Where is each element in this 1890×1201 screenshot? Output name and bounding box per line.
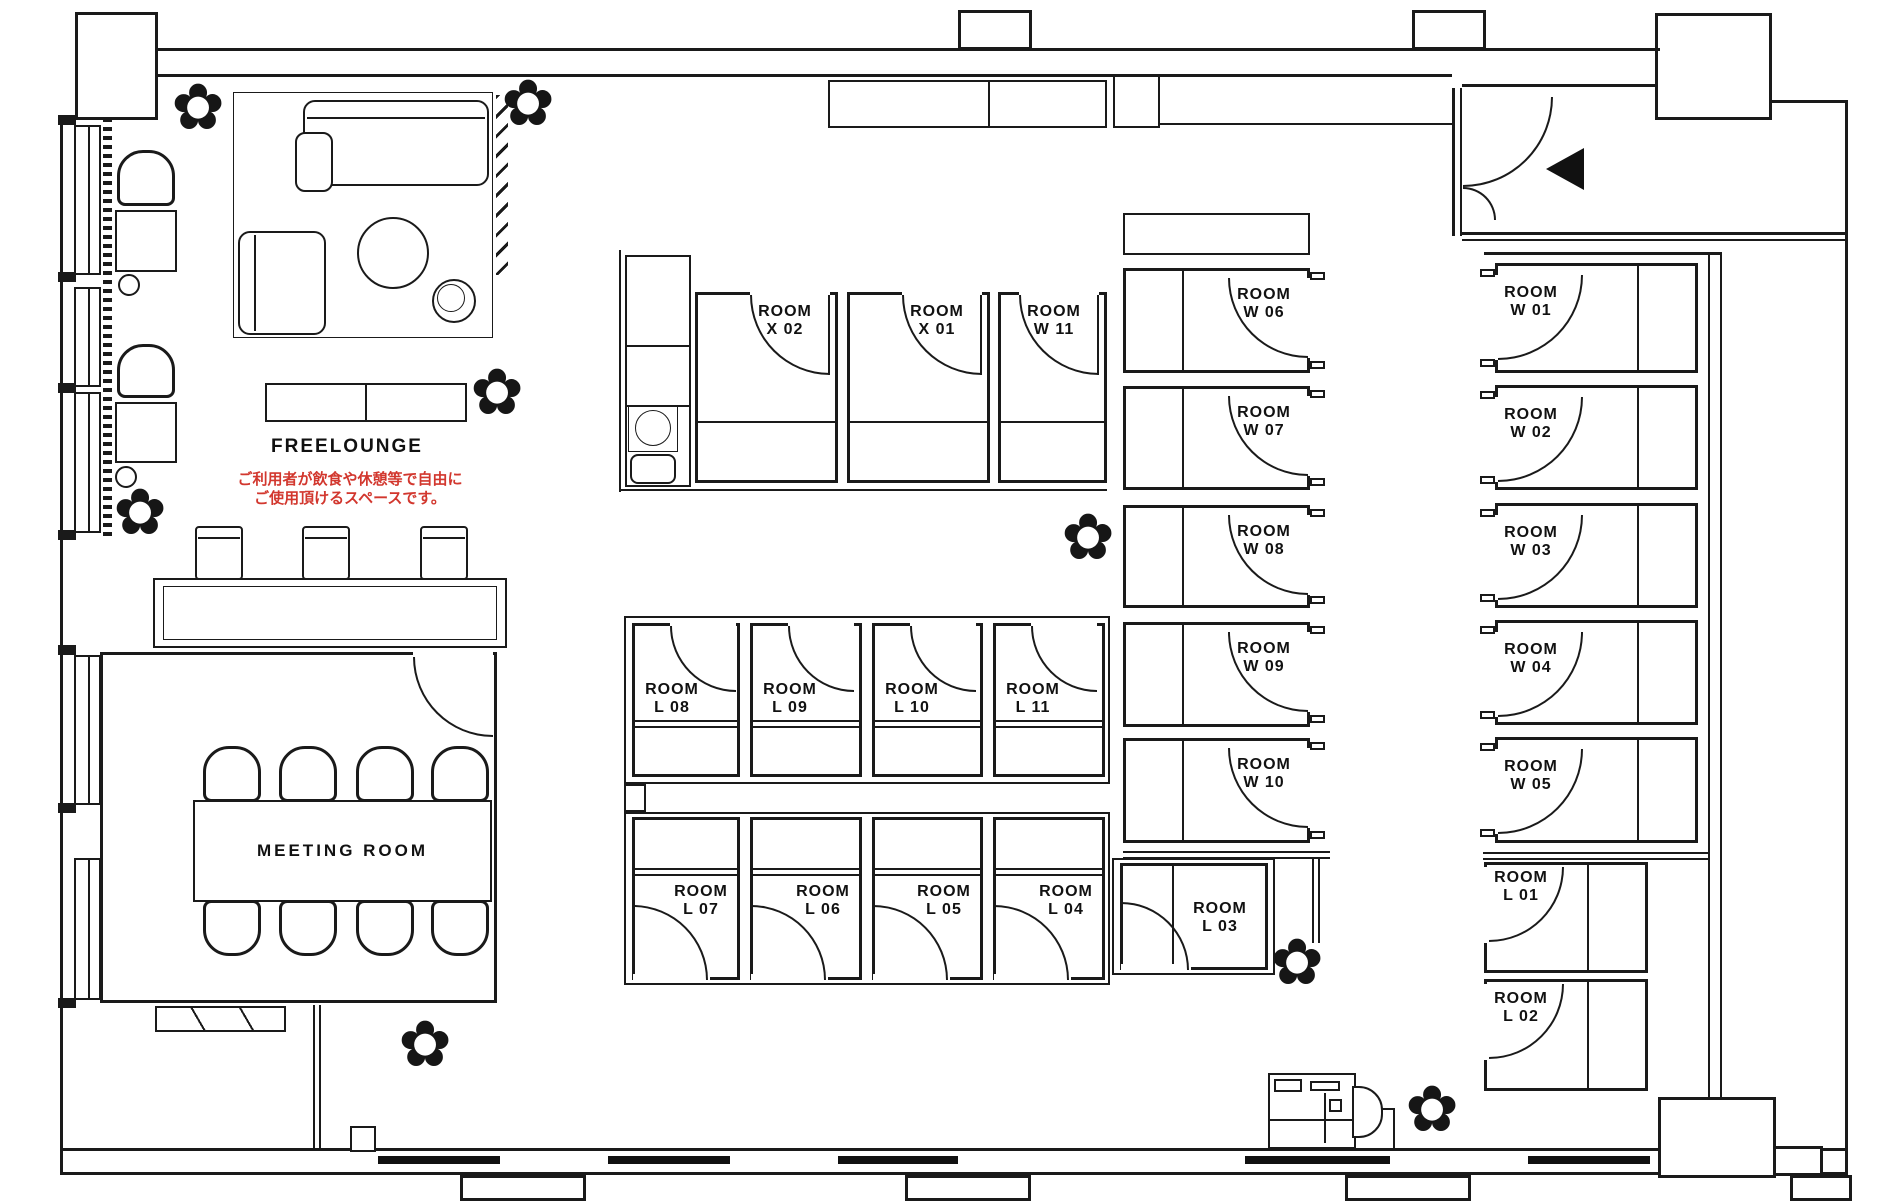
desk-divider xyxy=(1587,981,1589,1089)
room-label: ROOM xyxy=(1490,869,1552,887)
wall xyxy=(619,489,1107,491)
desk-edge xyxy=(634,720,738,722)
room-l09: ROOM L 09 xyxy=(750,623,862,777)
window xyxy=(74,287,101,387)
desk-divider xyxy=(1182,740,1184,841)
window xyxy=(1528,1156,1650,1164)
door-frame-tick xyxy=(1480,509,1495,517)
coffee-table xyxy=(357,217,429,289)
desk-divider xyxy=(1637,739,1639,841)
room-number: W 09 xyxy=(1222,658,1306,676)
chair xyxy=(203,746,261,802)
desk-edge xyxy=(995,720,1103,722)
room-number: W 02 xyxy=(1500,424,1562,442)
plant-icon: ✿ xyxy=(501,72,555,136)
room-l11: ROOM L 11 xyxy=(993,623,1105,777)
room-l08: ROOM L 08 xyxy=(632,623,740,777)
kitchen-stool xyxy=(630,454,676,484)
room-number: L 07 xyxy=(665,901,737,919)
plant-icon: ✿ xyxy=(1061,506,1115,570)
room-number: W 03 xyxy=(1500,542,1562,560)
door-frame-tick xyxy=(1480,626,1495,634)
room-number: X 01 xyxy=(884,321,990,339)
cabinet-hatched xyxy=(155,1006,286,1032)
wall-right xyxy=(1845,100,1848,1175)
window xyxy=(74,392,101,533)
room-label: ROOM xyxy=(635,681,709,699)
room-number: W 04 xyxy=(1500,659,1562,677)
room-w05: ROOM W 05 xyxy=(1495,737,1698,843)
room-label: ROOM xyxy=(1500,641,1562,659)
room-w08: ROOM W 08 xyxy=(1123,505,1310,608)
desk-edge xyxy=(634,874,738,876)
room-l01: ROOM L 01 xyxy=(1484,862,1648,973)
stool-line xyxy=(423,537,465,539)
desk-divider xyxy=(1637,622,1639,723)
door-opening xyxy=(413,649,493,657)
copier-panel xyxy=(1310,1081,1340,1091)
counter xyxy=(153,578,507,648)
desk-edge xyxy=(995,726,1103,728)
window xyxy=(378,1156,500,1164)
desk xyxy=(115,210,177,272)
copier-line xyxy=(1269,1119,1355,1121)
room-number: L 05 xyxy=(908,901,980,919)
chair xyxy=(431,746,489,802)
door-frame-tick xyxy=(1480,476,1495,484)
desk-divider xyxy=(1182,270,1184,371)
desk-divider xyxy=(1182,624,1184,725)
window xyxy=(838,1156,958,1164)
column-bottom-2 xyxy=(905,1175,1031,1201)
room-number: L 11 xyxy=(996,699,1070,717)
desk-edge xyxy=(697,421,836,423)
counter-stool xyxy=(302,526,350,580)
room-label: ROOM xyxy=(884,303,990,321)
room-l10: ROOM L 10 xyxy=(872,623,983,777)
room-label: ROOM xyxy=(1004,303,1104,321)
copier-machine xyxy=(1268,1073,1356,1149)
room-label: ROOM xyxy=(1222,404,1306,422)
door-frame-tick xyxy=(1480,391,1495,399)
door-frame-tick xyxy=(1310,390,1325,398)
room-label: ROOM xyxy=(1490,990,1552,1008)
room-number: L 02 xyxy=(1490,1008,1552,1026)
chair xyxy=(279,900,337,956)
desk-edge xyxy=(1000,421,1105,423)
room-w03: ROOM W 03 xyxy=(1495,503,1698,608)
entrance-frame xyxy=(1460,88,1462,236)
room-w01: ROOM W 01 xyxy=(1495,263,1698,373)
window xyxy=(1245,1156,1390,1164)
door-frame-tick xyxy=(1480,743,1495,751)
room-l03: ROOM L 03 xyxy=(1120,863,1268,970)
room-l04: ROOM L 04 xyxy=(993,817,1105,980)
cabinet-divider xyxy=(988,81,990,127)
column-top-1 xyxy=(958,10,1032,50)
room-w02: ROOM W 02 xyxy=(1495,385,1698,490)
plant-icon: ✿ xyxy=(1405,1078,1459,1142)
chair xyxy=(117,344,175,398)
lounge-note-line1: ご利用者が飲食や休憩等で自由に xyxy=(228,470,472,489)
copier-button xyxy=(1329,1099,1342,1112)
column-bottom-1 xyxy=(460,1175,586,1201)
wall-bottom xyxy=(60,1148,1848,1151)
room-label: ROOM xyxy=(996,681,1070,699)
meeting-table: MEETING ROOM xyxy=(193,800,492,902)
room-w04: ROOM W 04 xyxy=(1495,620,1698,725)
desk xyxy=(115,402,177,463)
desk-edge xyxy=(874,726,981,728)
door-frame-tick xyxy=(1310,715,1325,723)
shelf-divider xyxy=(365,384,367,421)
cabinet-top-small xyxy=(1113,75,1160,128)
desk-edge xyxy=(752,720,860,722)
room-l02: ROOM L 02 xyxy=(1484,979,1648,1091)
door-frame-tick xyxy=(1310,742,1325,750)
wall xyxy=(1770,100,1848,103)
door-frame-tick xyxy=(1480,711,1495,719)
room-x01: ROOM X 01 xyxy=(847,292,990,483)
room-number: W 11 xyxy=(1004,321,1104,339)
room-label: ROOM xyxy=(1222,286,1306,304)
room-number: L 03 xyxy=(1174,918,1266,936)
column-top-left xyxy=(75,12,158,120)
room-number: W 05 xyxy=(1500,776,1562,794)
room-label: ROOM xyxy=(1174,900,1266,918)
room-number: L 08 xyxy=(635,699,709,717)
wall xyxy=(319,1005,321,1148)
room-l05: ROOM L 05 xyxy=(872,817,983,980)
plant-icon: ✿ xyxy=(171,76,225,140)
wall xyxy=(158,48,1660,51)
desk-divider xyxy=(1637,265,1639,371)
room-l07: ROOM L 07 xyxy=(632,817,740,980)
stool-inner xyxy=(437,284,465,312)
kitchen-unit xyxy=(625,255,691,487)
wall-block-bottom-right xyxy=(1773,1146,1823,1176)
stool xyxy=(118,274,140,296)
room-label: ROOM xyxy=(1222,640,1306,658)
room-label: ROOM xyxy=(753,681,827,699)
chair xyxy=(356,746,414,802)
room-number: W 07 xyxy=(1222,422,1306,440)
door-frame-tick xyxy=(1310,831,1325,839)
copier-line xyxy=(1324,1093,1326,1143)
kitchen-divider xyxy=(626,345,690,347)
copier-panel xyxy=(1274,1079,1302,1092)
chair xyxy=(117,150,175,206)
column-bottom-3 xyxy=(1345,1175,1471,1201)
room-w06: ROOM W 06 xyxy=(1123,268,1310,373)
entrance-arrow-icon xyxy=(1546,148,1584,190)
wall-corridor xyxy=(1708,252,1710,1097)
door-frame-tick xyxy=(1310,596,1325,604)
wall xyxy=(1123,851,1330,853)
room-number: W 08 xyxy=(1222,541,1306,559)
room-w09: ROOM W 09 xyxy=(1123,622,1310,727)
desk-edge xyxy=(752,868,860,870)
corridor-cap xyxy=(624,784,646,812)
stool xyxy=(432,279,476,323)
lounge-note-line2: ご使用頂けるスペースです。 xyxy=(228,489,472,508)
room-number: W 06 xyxy=(1222,304,1306,322)
column-top-2 xyxy=(1412,10,1486,50)
plant-icon: ✿ xyxy=(470,361,524,425)
door-frame-tick xyxy=(1480,594,1495,602)
room-label: ROOM xyxy=(1030,883,1102,901)
wall xyxy=(1462,232,1845,235)
room-number: L 06 xyxy=(787,901,859,919)
desk-edge xyxy=(634,868,738,870)
chair xyxy=(203,900,261,956)
floor-plan: FREELOUNGE ご利用者が飲食や休憩等で自由に ご使用頂けるスペースです。… xyxy=(0,0,1890,1201)
sofa-back-line xyxy=(307,117,485,119)
window xyxy=(74,655,101,805)
column-bottom-4 xyxy=(1790,1175,1852,1201)
wall-pier xyxy=(58,645,76,655)
room-label: ROOM xyxy=(787,883,859,901)
stool-line xyxy=(198,537,240,539)
wall-corridor xyxy=(1720,252,1722,1097)
room-label: ROOM xyxy=(665,883,737,901)
plant-icon: ✿ xyxy=(113,481,167,545)
desk-edge xyxy=(849,421,988,423)
desk-divider xyxy=(1637,387,1639,488)
wall xyxy=(1483,852,1708,854)
room-label: ROOM xyxy=(875,681,949,699)
entrance-frame xyxy=(1452,88,1455,236)
entrance-door-arc xyxy=(1463,187,1496,220)
desk-edge xyxy=(995,874,1103,876)
counter-stool xyxy=(195,526,243,580)
wall xyxy=(1462,84,1657,87)
chair xyxy=(431,900,489,956)
room-label: ROOM xyxy=(1500,406,1562,424)
door-frame-tick xyxy=(1310,272,1325,280)
room-number: L 04 xyxy=(1030,901,1102,919)
chair xyxy=(356,900,414,956)
chair xyxy=(279,746,337,802)
window xyxy=(74,858,101,1000)
sofa-2 xyxy=(238,231,326,335)
column-small xyxy=(350,1126,376,1152)
wall xyxy=(1462,239,1845,241)
door-arc xyxy=(413,657,493,737)
room-w10: ROOM W 10 xyxy=(1123,738,1310,843)
door-frame-tick xyxy=(1310,626,1325,634)
desk-edge xyxy=(874,868,981,870)
plant-icon: ✿ xyxy=(1270,931,1324,995)
cabinet-w-block xyxy=(1123,213,1310,255)
meeting-room: MEETING ROOM xyxy=(100,652,497,1003)
room-l06: ROOM L 06 xyxy=(750,817,862,980)
room-label: ROOM xyxy=(1222,756,1306,774)
wall xyxy=(619,250,621,492)
desk-edge xyxy=(874,720,981,722)
entrance-door-arc xyxy=(1463,97,1553,187)
desk-edge xyxy=(752,874,860,876)
window xyxy=(608,1156,730,1164)
room-label: ROOM xyxy=(1500,758,1562,776)
room-w07: ROOM W 07 xyxy=(1123,386,1310,490)
cabinet-top xyxy=(828,80,1107,128)
door-frame-tick xyxy=(1480,269,1495,277)
desk-edge xyxy=(634,726,738,728)
shelf xyxy=(265,383,467,422)
lounge-label: FREELOUNGE xyxy=(262,436,432,458)
desk-divider xyxy=(1637,505,1639,606)
sofa-back-line xyxy=(254,235,256,331)
wall xyxy=(1483,858,1708,860)
sink-bowl xyxy=(635,410,671,446)
door-frame-tick xyxy=(1310,509,1325,517)
desk-divider xyxy=(1182,388,1184,488)
desk-edge xyxy=(995,868,1103,870)
room-number: L 10 xyxy=(875,699,949,717)
wall-pier xyxy=(58,115,76,125)
room-label: ROOM xyxy=(1500,524,1562,542)
door-frame-tick xyxy=(1480,359,1495,367)
room-label: ROOM xyxy=(908,883,980,901)
desk-edge xyxy=(874,874,981,876)
column-top-right xyxy=(1655,13,1772,120)
desk-divider xyxy=(1182,507,1184,606)
wall xyxy=(158,74,1452,77)
room-number: W 10 xyxy=(1222,774,1306,792)
room-w11: ROOM W 11 xyxy=(998,292,1107,483)
room-label: ROOM xyxy=(1222,523,1306,541)
desk-divider xyxy=(1587,864,1589,971)
counter-stool xyxy=(420,526,468,580)
door-frame-tick xyxy=(1310,478,1325,486)
wall xyxy=(313,1005,315,1148)
room-number: L 01 xyxy=(1490,887,1552,905)
blind-symbol xyxy=(103,120,112,536)
room-number: W 01 xyxy=(1500,302,1562,320)
room-label: ROOM xyxy=(732,303,838,321)
stool-line xyxy=(305,537,347,539)
sofa-side-table xyxy=(295,132,333,192)
room-x02: ROOM X 02 xyxy=(695,292,838,483)
wall xyxy=(1160,123,1452,125)
window xyxy=(74,125,101,275)
door-frame-tick xyxy=(1480,829,1495,837)
wall-block-bottom-right xyxy=(1658,1097,1776,1178)
room-label: ROOM xyxy=(1500,284,1562,302)
counter-inner xyxy=(163,586,497,640)
wall xyxy=(1484,252,1722,255)
room-number: X 02 xyxy=(732,321,838,339)
desk-edge xyxy=(752,726,860,728)
door-frame-tick xyxy=(1310,361,1325,369)
room-number: L 09 xyxy=(753,699,827,717)
plant-icon: ✿ xyxy=(398,1013,452,1077)
